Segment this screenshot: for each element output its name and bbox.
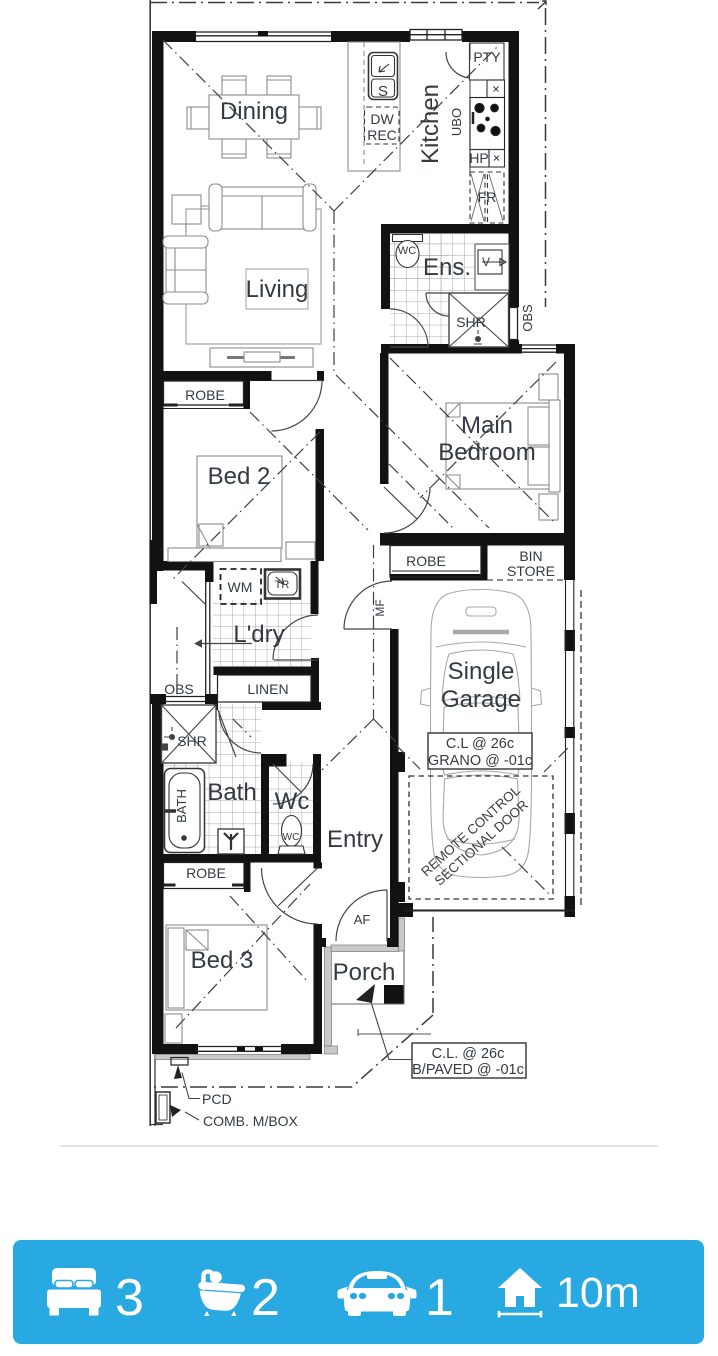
- svg-text:Wc: Wc: [275, 788, 310, 815]
- svg-text:Main: Main: [461, 412, 513, 439]
- svg-text:LINEN: LINEN: [247, 681, 288, 697]
- svg-text:Ens.: Ens.: [423, 254, 471, 281]
- svg-text:Single: Single: [448, 658, 515, 685]
- svg-text:AF: AF: [354, 912, 371, 927]
- svg-text:WC: WC: [283, 832, 300, 843]
- svg-text:Garage: Garage: [441, 686, 521, 713]
- svg-text:C.L @ 26c: C.L @ 26c: [446, 736, 514, 752]
- svg-text:BATH: BATH: [174, 789, 189, 823]
- svg-text:OBS: OBS: [520, 304, 535, 332]
- svg-text:GRANO @ -01c: GRANO @ -01c: [428, 753, 532, 769]
- svg-text:REC: REC: [367, 127, 397, 143]
- svg-text:Living: Living: [246, 276, 309, 303]
- svg-text:MF: MF: [373, 599, 387, 616]
- svg-text:SHR: SHR: [456, 314, 486, 330]
- svg-text:ROBE: ROBE: [185, 387, 225, 403]
- svg-text:REMOTE CONTROL: REMOTE CONTROL: [418, 782, 523, 879]
- svg-text:ROBE: ROBE: [186, 865, 226, 881]
- svg-text:ROBE: ROBE: [406, 553, 446, 569]
- svg-text:STORE: STORE: [507, 563, 555, 579]
- svg-text:Entry: Entry: [327, 826, 383, 853]
- svg-text:Kitchen: Kitchen: [417, 84, 444, 164]
- svg-text:WM: WM: [228, 579, 253, 595]
- svg-text:OBS: OBS: [164, 681, 194, 697]
- svg-text:C.L. @ 26c: C.L. @ 26c: [432, 1046, 505, 1062]
- svg-text:DW: DW: [370, 111, 394, 127]
- svg-text:WC: WC: [398, 245, 416, 257]
- svg-text:SHR: SHR: [177, 733, 207, 749]
- svg-text:Porch: Porch: [333, 959, 396, 986]
- svg-text:Bed 3: Bed 3: [191, 947, 254, 974]
- svg-text:BIN: BIN: [519, 548, 542, 564]
- svg-text:PTY: PTY: [473, 49, 501, 65]
- svg-text:UBO: UBO: [449, 108, 464, 136]
- svg-text:Bath: Bath: [207, 779, 256, 806]
- svg-text:PCD: PCD: [202, 1091, 232, 1107]
- svg-text:L'dry: L'dry: [233, 621, 284, 648]
- svg-text:HP: HP: [469, 150, 488, 166]
- svg-text:V: V: [482, 255, 490, 269]
- svg-text:B/PAVED @ -01c: B/PAVED @ -01c: [412, 1062, 524, 1078]
- svg-text:Dining: Dining: [220, 98, 288, 125]
- svg-text:FR: FR: [478, 189, 497, 205]
- svg-text:Bedroom: Bedroom: [438, 439, 535, 466]
- svg-text:COMB. M/BOX: COMB. M/BOX: [203, 1113, 299, 1129]
- svg-text:S: S: [378, 83, 388, 100]
- svg-text:Bed 2: Bed 2: [208, 463, 271, 490]
- svg-text:TR: TR: [275, 579, 290, 591]
